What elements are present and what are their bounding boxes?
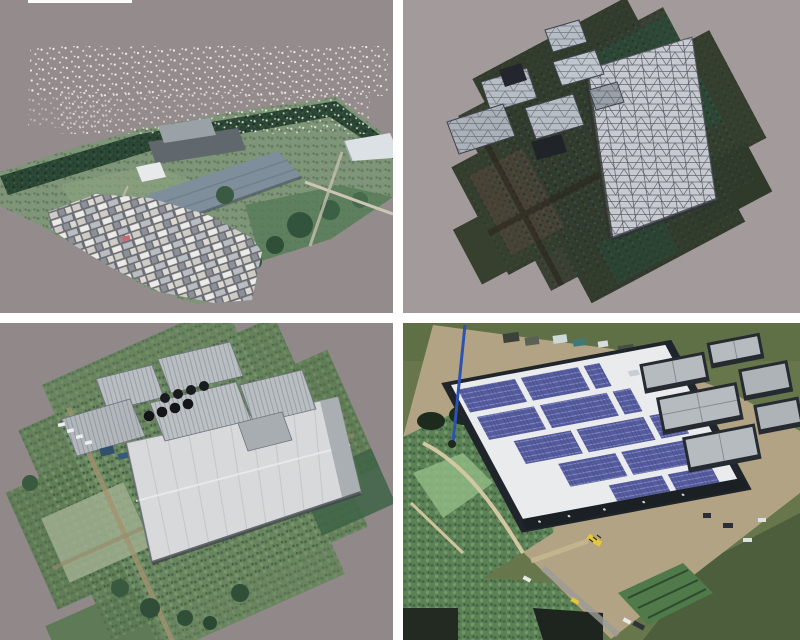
wireframe-roof bbox=[586, 37, 716, 239]
panel-point-cloud bbox=[0, 0, 393, 313]
panel-textured-mesh bbox=[0, 323, 393, 640]
panel-wireframe-mesh bbox=[403, 0, 800, 313]
panel-rendered-model bbox=[403, 323, 800, 640]
image-grid bbox=[0, 0, 800, 640]
